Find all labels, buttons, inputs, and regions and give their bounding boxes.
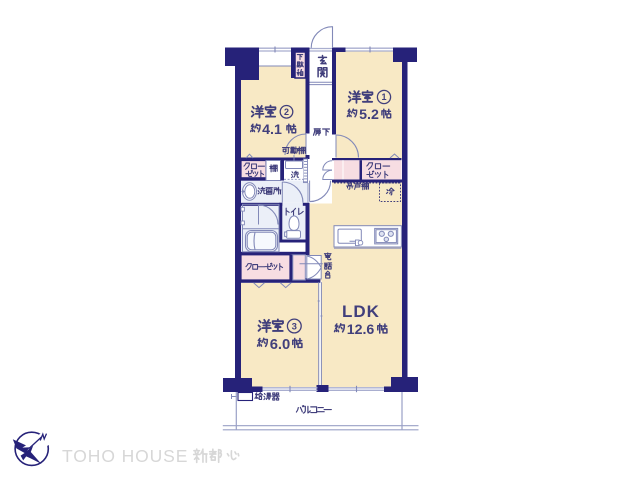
svg-text:TOHO HOUSE: TOHO HOUSE — [62, 446, 188, 466]
svg-text:2: 2 — [284, 107, 289, 117]
svg-text:LDK: LDK — [342, 302, 380, 321]
svg-text:6.0: 6.0 — [270, 337, 291, 353]
svg-text:1: 1 — [381, 92, 386, 102]
svg-text:12.6: 12.6 — [347, 322, 375, 338]
svg-text:5.2: 5.2 — [359, 107, 379, 123]
svg-text:3: 3 — [292, 321, 297, 332]
svg-text:4.1: 4.1 — [262, 122, 282, 138]
